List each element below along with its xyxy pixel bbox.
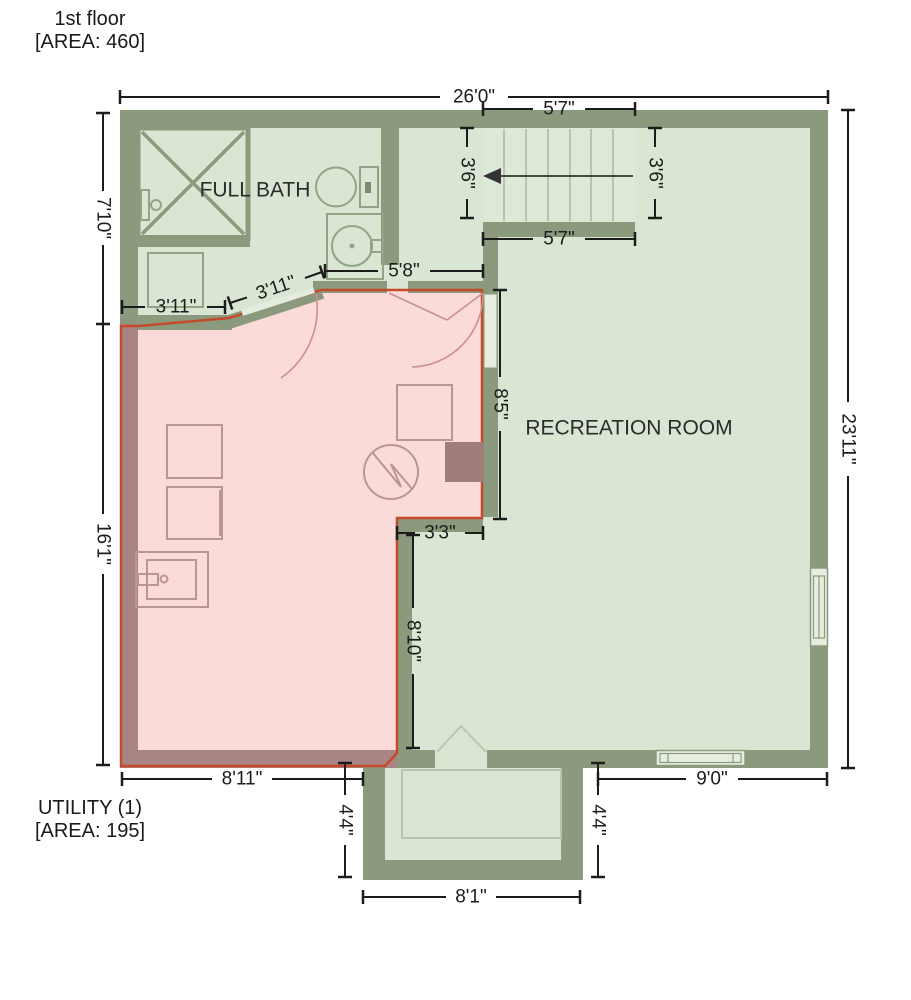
dim-label: 3'11" (156, 297, 197, 318)
wall-top (120, 110, 828, 128)
dim-top-width: 26'0" (120, 87, 828, 108)
dim-label: 3'6" (457, 157, 478, 189)
dim-label: 8'5" (490, 388, 511, 420)
dim-label: 23'11" (838, 413, 859, 464)
stairs-floor (483, 128, 635, 222)
dim-label: 8'1" (455, 887, 487, 908)
chimney-block (445, 442, 483, 482)
porch-floor (385, 768, 561, 862)
room-label-full-bath: FULL BATH (200, 179, 311, 202)
dim-porch-left: 4'4" (335, 763, 356, 877)
toilet-button (365, 182, 371, 193)
wall-utility-left (120, 324, 138, 768)
dim-label: 5'8" (388, 261, 420, 282)
window-bottom (656, 751, 745, 766)
dim-right-full: 23'11" (838, 110, 859, 768)
dim-label: 5'7" (543, 229, 575, 250)
floorplan-page: 1st floor [AREA: 460] UTILITY (1) [AREA:… (0, 0, 911, 1000)
dim-label: 4'4" (588, 804, 609, 836)
dim-label: 3'6" (645, 157, 666, 189)
dim-label: 26'0" (453, 87, 495, 108)
dim-label: 9'0" (696, 769, 728, 790)
wall-divider (483, 237, 498, 517)
dim-label: 7'10" (93, 197, 114, 239)
dim-label: 16'1" (93, 523, 114, 565)
porch-doorway-gap (435, 750, 487, 768)
dim-label: 4'4" (335, 804, 356, 836)
wall-porch-bottom (363, 860, 583, 880)
dim-utility-bottom: 8'11" (122, 769, 363, 790)
wall-porch-right (561, 766, 583, 880)
floorplan-svg: FULL BATH RECREATION ROOM 26'0" 5'7" 3'6… (0, 0, 911, 1000)
dim-bottom-right: 9'0" (598, 769, 827, 790)
dim-label: 8'11" (222, 769, 263, 790)
wall-right (810, 110, 828, 768)
dim-left-upper: 7'10" (93, 113, 114, 324)
sink-drain (350, 244, 355, 249)
dim-label: 3'3" (424, 523, 456, 544)
dim-left-lower: 16'1" (93, 324, 114, 765)
window-right (811, 568, 828, 646)
dim-label: 8'10" (403, 620, 424, 662)
dim-label: 5'7" (543, 99, 575, 120)
wall-left-upper (120, 110, 138, 330)
window-icon (656, 751, 745, 766)
divider-pass-opening (484, 294, 497, 368)
dim-porch-bottom: 8'1" (363, 887, 580, 908)
room-label-recreation: RECREATION ROOM (525, 417, 732, 440)
